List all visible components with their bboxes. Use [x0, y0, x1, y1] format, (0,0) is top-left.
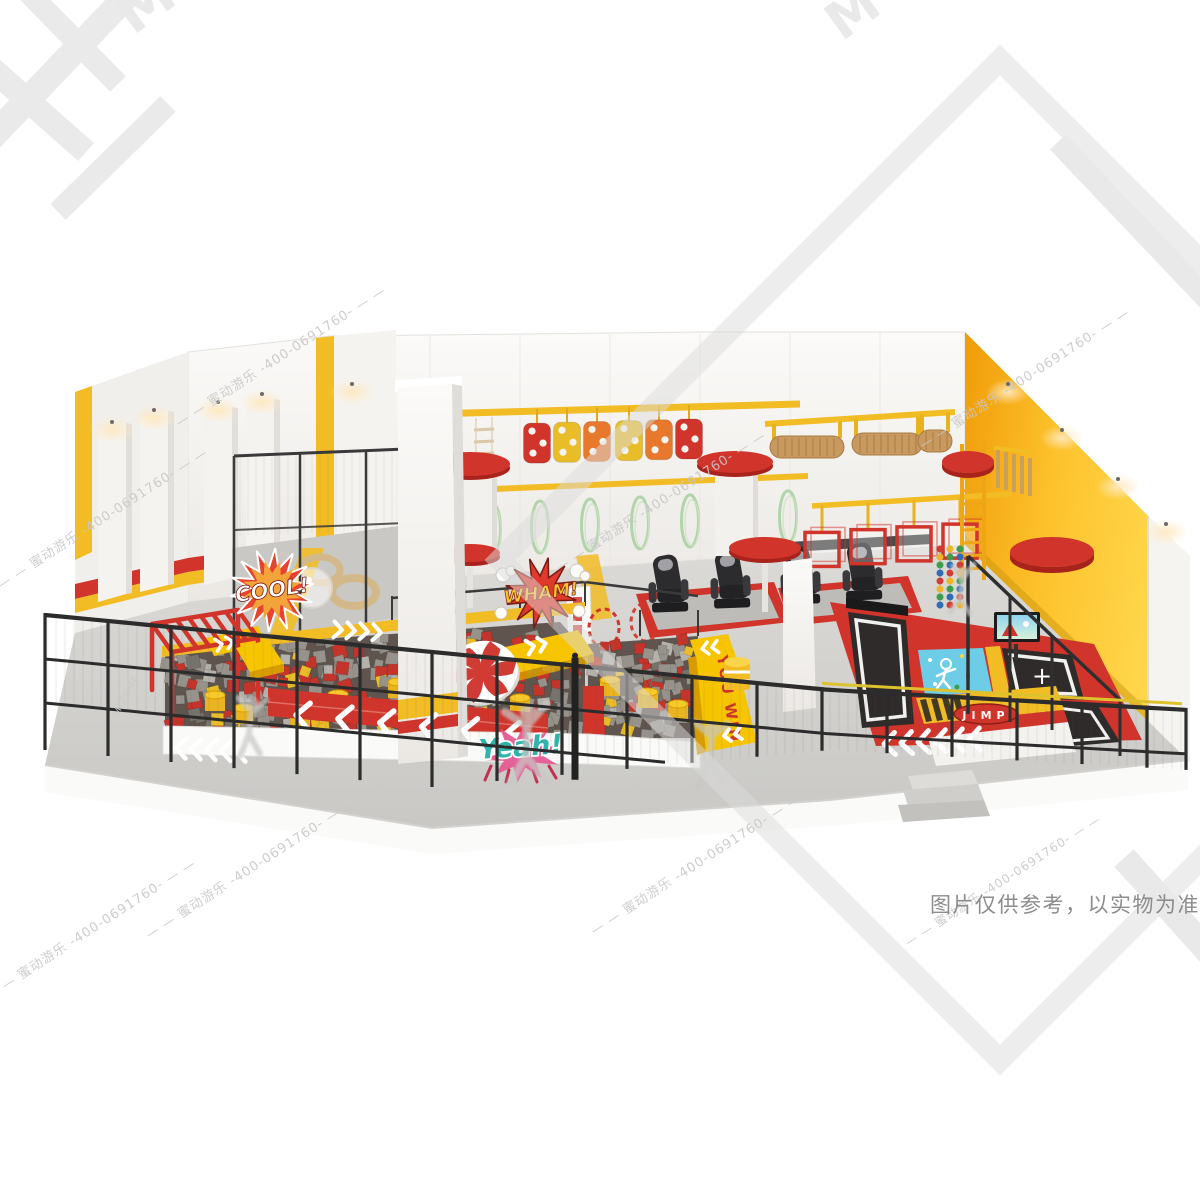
cheese-hole: [588, 426, 595, 433]
bead: [937, 546, 944, 553]
cheese-hole: [661, 436, 668, 443]
bead: [957, 546, 964, 553]
disclaimer-text: 图片仅供参考，以实物为准: [930, 893, 1200, 917]
foam-cube: [658, 645, 667, 654]
pillar-shade: [168, 411, 174, 585]
disc-pillar-shade: [492, 470, 497, 560]
cheese-hole: [569, 439, 576, 446]
render-canvas: YOU WIN +: [0, 0, 1200, 1200]
cheese-hole: [680, 423, 687, 430]
foam-cube: [324, 665, 333, 674]
bead: [937, 578, 944, 585]
foam-cube: [176, 654, 186, 664]
bead: [957, 554, 964, 561]
cheese-hole: [558, 427, 565, 434]
bead: [937, 602, 944, 609]
bead: [947, 578, 954, 585]
ladder-rung: [962, 503, 984, 504]
foam-cube: [643, 648, 655, 660]
cheese-hole: [650, 424, 657, 431]
bead: [937, 594, 944, 601]
light-fixture: [110, 420, 114, 424]
wall-pillar: [204, 407, 232, 585]
bead: [937, 586, 944, 593]
red-shelf: [942, 451, 994, 473]
bead: [947, 570, 954, 577]
wall-pillar: [140, 411, 168, 592]
ladder-rung: [962, 542, 984, 543]
light-fixture: [1116, 477, 1120, 481]
light-fixture: [1060, 428, 1064, 432]
cheese-hole: [559, 449, 566, 456]
foam-cube: [676, 633, 689, 646]
bead: [937, 562, 944, 569]
cheese-hole: [691, 435, 698, 442]
scene: YOU WIN +: [45, 330, 1190, 854]
rolling-log: [770, 436, 844, 458]
cheese-hole: [539, 439, 546, 446]
ladder-rung: [962, 516, 984, 517]
light-fixture: [260, 392, 264, 396]
bead: [947, 554, 954, 561]
plus-mark: +: [1032, 662, 1052, 690]
light-fixture: [350, 382, 354, 386]
ladder-rung: [962, 555, 984, 556]
foam-cylinder-top: [668, 700, 688, 708]
cheese-hole: [528, 427, 535, 434]
foam-cube: [609, 639, 622, 652]
light-fixture: [1164, 522, 1168, 526]
light-fixture: [152, 408, 156, 412]
gate-post-cap: [572, 653, 578, 659]
bead: [947, 586, 954, 593]
bead: [937, 570, 944, 577]
bead: [947, 546, 954, 553]
ladder-rung: [962, 529, 984, 530]
foam-cube: [176, 695, 185, 704]
foam-cube: [186, 689, 200, 703]
red-disc: [729, 537, 801, 559]
cheese-hole: [681, 445, 688, 452]
foam-cube: [188, 708, 202, 722]
foam-cube: [621, 654, 635, 668]
foam-cube: [684, 646, 694, 656]
ladder-rung: [962, 490, 984, 491]
cheese-hole: [529, 449, 536, 456]
rolling-log: [852, 433, 922, 455]
bead: [937, 554, 944, 561]
red-shelf: [1010, 537, 1094, 567]
foam-cylinder-top: [510, 694, 530, 702]
foam-cube: [380, 634, 389, 643]
foam-cube: [185, 654, 201, 670]
bead: [947, 594, 954, 601]
foam-cube: [665, 680, 675, 690]
playground-render: YOU WIN +: [0, 0, 1200, 1200]
foam-tube-top: [724, 657, 750, 667]
foam-cylinder-top: [205, 691, 225, 699]
foam-cube: [335, 661, 349, 675]
cheese-hole: [651, 446, 658, 453]
